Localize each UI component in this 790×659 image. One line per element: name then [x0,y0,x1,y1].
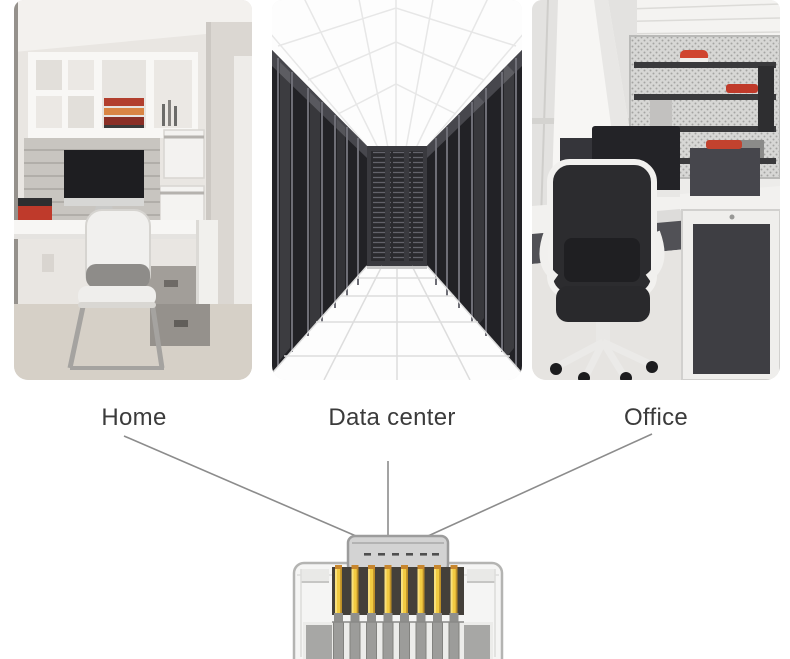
rj45-connector-illustration [292,529,504,659]
rj45-connector [292,529,504,659]
line-home-to-connector [124,436,356,536]
plug-latch-cap [348,536,448,572]
data-center-label: Data center [328,404,455,432]
application-scenarios-section: Home Data center Office [0,0,790,659]
data-center-photo-illustration [272,0,522,380]
home-photo-illustration [14,0,252,380]
back-rack-wall [367,146,427,266]
data-center-photo [272,0,522,380]
side-cabinet [682,210,780,380]
line-office-to-connector [428,434,652,536]
wall-shelf [28,52,198,138]
office-label: Office [624,404,688,432]
office-photo-illustration [532,0,780,380]
home-label: Home [101,404,166,432]
home-photo [14,0,252,380]
cable-wires [303,622,493,659]
office-photo [532,0,780,380]
